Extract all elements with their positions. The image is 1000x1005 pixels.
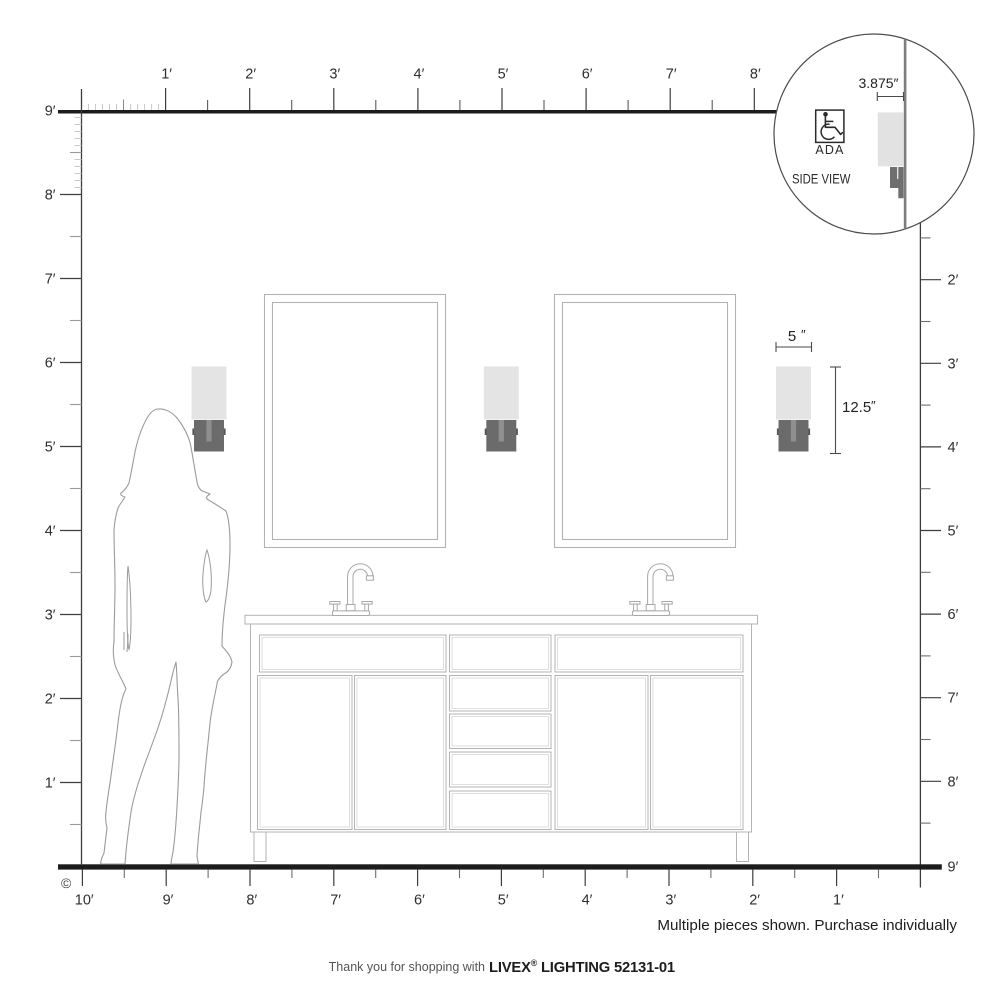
svg-text:5′: 5′ xyxy=(498,893,509,909)
svg-text:5′: 5′ xyxy=(498,67,509,83)
svg-text:12.5: 12.5 xyxy=(842,399,871,416)
svg-text:LIVEX® LIGHTING 52131-01: LIVEX® LIGHTING 52131-01 xyxy=(489,958,675,976)
svg-text:Multiple pieces shown. Purchas: Multiple pieces shown. Purchase individu… xyxy=(657,917,957,934)
svg-text:2′: 2′ xyxy=(245,67,256,83)
svg-text:3′: 3′ xyxy=(45,608,56,624)
svg-text:1′: 1′ xyxy=(833,893,844,909)
svg-text:8′: 8′ xyxy=(246,893,257,909)
svg-text:4′: 4′ xyxy=(582,893,593,909)
svg-text:Thank you for shopping with: Thank you for shopping with xyxy=(329,960,485,974)
svg-text:1′: 1′ xyxy=(161,67,172,83)
svg-text:3′: 3′ xyxy=(329,67,340,83)
svg-text:6′: 6′ xyxy=(45,356,56,372)
svg-text:7′: 7′ xyxy=(45,272,56,288)
svg-text:ADA: ADA xyxy=(815,143,844,157)
svg-text:5: 5 xyxy=(788,328,796,345)
svg-text:4′: 4′ xyxy=(948,440,959,456)
svg-text:3′: 3′ xyxy=(665,893,676,909)
svg-text:5′: 5′ xyxy=(45,440,56,456)
svg-text:3.875″: 3.875″ xyxy=(859,75,899,91)
svg-text:″: ″ xyxy=(801,327,806,342)
svg-text:4′: 4′ xyxy=(414,67,425,83)
svg-text:10′: 10′ xyxy=(75,893,94,909)
svg-text:7′: 7′ xyxy=(666,67,677,83)
svg-text:8′: 8′ xyxy=(948,774,959,790)
svg-text:©: © xyxy=(61,875,72,891)
svg-text:2′: 2′ xyxy=(749,893,760,909)
svg-text:″: ″ xyxy=(871,398,876,413)
svg-text:5′: 5′ xyxy=(948,524,959,540)
svg-text:2′: 2′ xyxy=(45,692,56,708)
svg-text:7′: 7′ xyxy=(330,893,341,909)
svg-text:9′: 9′ xyxy=(45,103,56,119)
svg-text:6′: 6′ xyxy=(948,607,959,623)
svg-text:6′: 6′ xyxy=(414,893,425,909)
svg-text:2′: 2′ xyxy=(948,273,959,289)
svg-text:8′: 8′ xyxy=(750,67,761,83)
svg-text:7′: 7′ xyxy=(948,691,959,707)
svg-text:4′: 4′ xyxy=(45,524,56,540)
svg-text:6′: 6′ xyxy=(582,67,593,83)
svg-text:8′: 8′ xyxy=(45,188,56,204)
svg-text:1′: 1′ xyxy=(45,776,56,792)
svg-text:SIDE VIEW: SIDE VIEW xyxy=(792,171,851,186)
svg-text:3′: 3′ xyxy=(948,356,959,372)
svg-text:9′: 9′ xyxy=(163,893,174,909)
svg-text:9′: 9′ xyxy=(948,860,959,876)
